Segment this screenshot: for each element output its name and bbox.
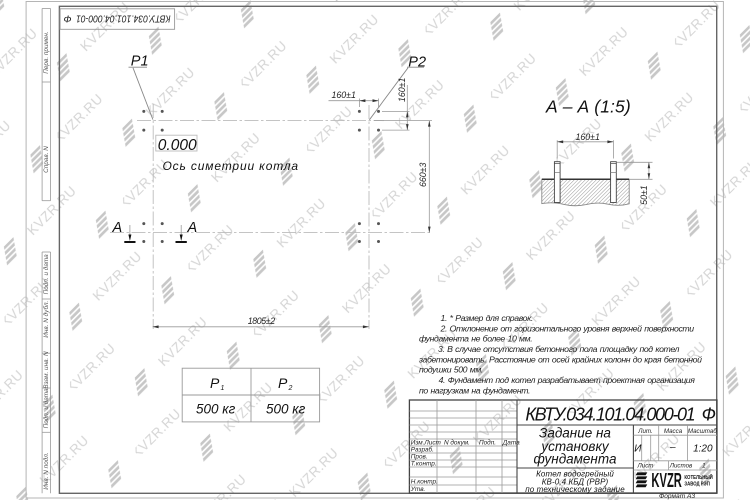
svg-text:КВТУ.034.101.04.000-01: КВТУ.034.101.04.000-01 [76, 12, 171, 23]
svg-text:P: P [210, 375, 220, 391]
svg-text:ЗАВОД РЭП: ЗАВОД РЭП [684, 482, 709, 488]
svg-text:–: – [669, 442, 676, 453]
svg-text:1: 1 [702, 463, 705, 470]
svg-text:Пров.: Пров. [411, 454, 428, 461]
svg-text:Подп. и дата: Подп. и дата [42, 388, 50, 428]
svg-text:А – А (1:5): А – А (1:5) [545, 97, 631, 117]
svg-text:500 кг: 500 кг [196, 402, 236, 417]
svg-text:KVZR: KVZR [651, 469, 682, 492]
svg-text:фундамента не более 10 мм.: фундамента не более 10 мм. [419, 334, 532, 344]
svg-text:1. * Размер для справок.: 1. * Размер для справок. [441, 313, 533, 323]
svg-text:Н.контр.: Н.контр. [411, 479, 438, 486]
svg-text:Дата: Дата [502, 440, 520, 447]
svg-text:забетонировать. Расстояние от: забетонировать. Расстояние от осей крайн… [418, 354, 702, 364]
svg-text:160±1: 160±1 [332, 90, 357, 100]
svg-text:КВТУ.034.101.04.000-01 Ф: КВТУ.034.101.04.000-01 Ф [525, 405, 715, 425]
svg-text:Инв. N подл.: Инв. N подл. [42, 452, 50, 489]
svg-text:A: A [187, 220, 198, 236]
svg-text:Подп.: Подп. [479, 439, 496, 447]
svg-text:Подп. и дата: Подп. и дата [42, 254, 50, 294]
svg-text:Ось симетрии котла: Ось симетрии котла [163, 159, 299, 173]
svg-text:И: И [634, 444, 642, 455]
svg-text:Инв. N дубл.: Инв. N дубл. [42, 301, 50, 338]
svg-text:P: P [278, 375, 288, 391]
svg-text:500 кг: 500 кг [266, 402, 306, 417]
svg-text:Взам. инв. N: Взам. инв. N [43, 351, 50, 389]
svg-text:P1: P1 [131, 53, 149, 69]
svg-text:Масштаб: Масштаб [688, 428, 717, 435]
svg-text:по техническому задание: по техническому задание [525, 485, 625, 494]
svg-text:Ф: Ф [64, 12, 72, 23]
svg-text:4. Фундамент под котел разраба: 4. Фундамент под котел разрабатывает про… [439, 375, 696, 385]
svg-text:Разраб.: Разраб. [411, 446, 434, 454]
svg-text:1: 1 [221, 385, 225, 392]
svg-text:1805±2: 1805±2 [248, 316, 275, 326]
svg-text:Утв.: Утв. [410, 486, 426, 493]
svg-text:N докум.: N докум. [444, 439, 470, 447]
svg-text:Т.контр.: Т.контр. [411, 461, 437, 468]
svg-text:50±1: 50±1 [639, 185, 649, 205]
svg-text:Формат А3: Формат А3 [659, 493, 695, 500]
svg-text:подушки 500 мм.: подушки 500 мм. [419, 365, 483, 375]
svg-text:по нагрузкам на фундамент.: по нагрузкам на фундамент. [419, 385, 530, 395]
svg-text:1:20: 1:20 [693, 444, 713, 455]
svg-text:КОТЕЛЬНЫЙ: КОТЕЛЬНЫЙ [684, 473, 712, 481]
svg-text:Справ. N: Справ. N [43, 146, 50, 173]
svg-text:0.000: 0.000 [158, 137, 197, 154]
svg-text:3. В случае отсутствия бетонно: 3. В случае отсутствия бетонного пола пл… [438, 344, 680, 354]
svg-text:P2: P2 [408, 54, 426, 70]
svg-text:660±3: 660±3 [418, 162, 428, 187]
svg-text:Лит.: Лит. [637, 428, 653, 435]
svg-text:Масса: Масса [664, 428, 683, 435]
svg-text:160±1: 160±1 [397, 77, 407, 102]
svg-text:фундамента: фундамента [534, 452, 617, 467]
svg-text:2: 2 [288, 385, 293, 392]
svg-text:Перв. примен.: Перв. примен. [43, 31, 50, 73]
svg-text:Изм.Лист: Изм.Лист [411, 440, 442, 447]
svg-text:160±1: 160±1 [576, 132, 601, 142]
svg-text:2. Отклонение от горизонтально: 2. Отклонение от горизонтального уровня … [440, 323, 695, 333]
svg-text:A: A [112, 220, 123, 236]
